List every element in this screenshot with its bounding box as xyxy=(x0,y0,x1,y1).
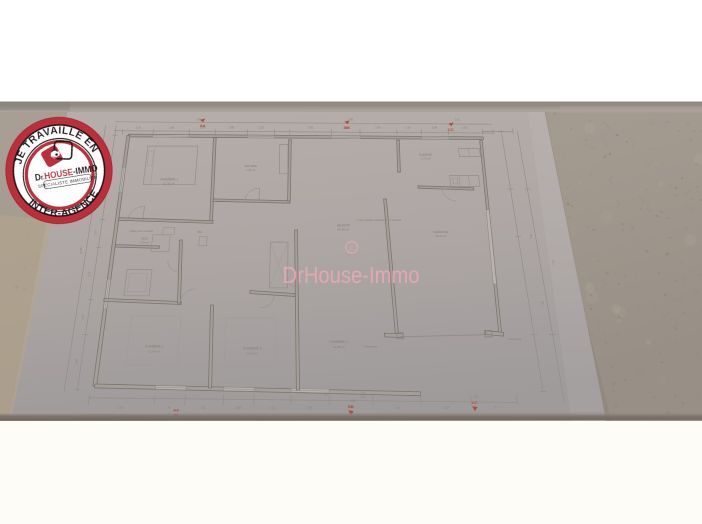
svg-text:455: 455 xyxy=(350,399,356,403)
svg-text:41: 41 xyxy=(324,393,328,397)
svg-text:2.00: 2.00 xyxy=(118,406,124,410)
svg-text:WC: WC xyxy=(197,230,202,234)
svg-text:c: c xyxy=(350,243,354,252)
svg-text:1.00: 1.00 xyxy=(136,125,142,129)
svg-text:1.51: 1.51 xyxy=(462,125,468,129)
svg-text:1.71: 1.71 xyxy=(81,314,85,320)
svg-text:7.73 m²: 7.73 m² xyxy=(421,156,431,160)
svg-text:2.08: 2.08 xyxy=(432,125,438,129)
svg-text:25.24 m²: 25.24 m² xyxy=(436,234,447,238)
svg-text:44.30 m²: 44.30 m² xyxy=(337,228,349,232)
svg-text:CC: CC xyxy=(472,400,478,405)
svg-text:7.33 m²: 7.33 m² xyxy=(139,241,149,245)
svg-text:3.05: 3.05 xyxy=(308,125,314,129)
svg-text:Poteau bois: Poteau bois xyxy=(364,345,378,348)
svg-text:2.43: 2.43 xyxy=(229,125,235,129)
svg-text:Cellier sous combles: Cellier sous combles xyxy=(130,230,154,233)
svg-text:13.29 m²: 13.29 m² xyxy=(246,351,258,355)
svg-text:1.24: 1.24 xyxy=(307,406,313,410)
svg-text:12.49 m²: 12.49 m² xyxy=(148,349,160,353)
svg-text:233: 233 xyxy=(473,395,479,399)
svg-text:2.98: 2.98 xyxy=(169,125,175,129)
svg-text:7.25 m²: 7.25 m² xyxy=(246,168,256,172)
svg-text:CC: CC xyxy=(448,127,454,132)
svg-text:CHAMBRE 4: CHAMBRE 4 xyxy=(329,340,348,344)
svg-text:2.76: 2.76 xyxy=(375,125,381,129)
svg-text:1.08: 1.08 xyxy=(236,406,242,410)
svg-text:TERRASSE: TERRASSE xyxy=(433,230,449,234)
svg-text:2.49: 2.49 xyxy=(74,358,78,364)
svg-text:2.15: 2.15 xyxy=(270,406,276,410)
svg-text:2.20: 2.20 xyxy=(395,406,401,410)
svg-text:BB: BB xyxy=(348,404,354,409)
svg-text:1.60: 1.60 xyxy=(94,230,98,236)
svg-text:3.10: 3.10 xyxy=(455,117,461,121)
svg-text:2.14: 2.14 xyxy=(444,406,450,410)
svg-text:1.10: 1.10 xyxy=(259,125,265,129)
svg-text:DrHouse-Immo: DrHouse-Immo xyxy=(283,262,420,288)
svg-text:214: 214 xyxy=(360,395,366,399)
svg-text:AA: AA xyxy=(173,408,179,413)
svg-text:BB: BB xyxy=(344,125,350,130)
svg-text:AA: AA xyxy=(200,123,206,128)
svg-text:1 porte fenêtre coulissante à: 1 porte fenêtre coulissante à 2 vantaux xyxy=(356,218,401,222)
svg-text:CHAMBRE 3: CHAMBRE 3 xyxy=(243,347,262,351)
svg-text:2.73: 2.73 xyxy=(87,271,91,277)
svg-text:12.36 m²: 12.36 m² xyxy=(163,181,175,185)
svg-text:13.28 m²: 13.28 m² xyxy=(333,345,345,349)
svg-text:10.45: 10.45 xyxy=(79,247,83,254)
svg-text:CHAMBRE 2: CHAMBRE 2 xyxy=(145,344,164,348)
svg-text:1.07: 1.07 xyxy=(406,125,412,129)
svg-text:Poutre bois: Poutre bois xyxy=(508,338,521,341)
svg-text:2.11: 2.11 xyxy=(201,406,206,410)
